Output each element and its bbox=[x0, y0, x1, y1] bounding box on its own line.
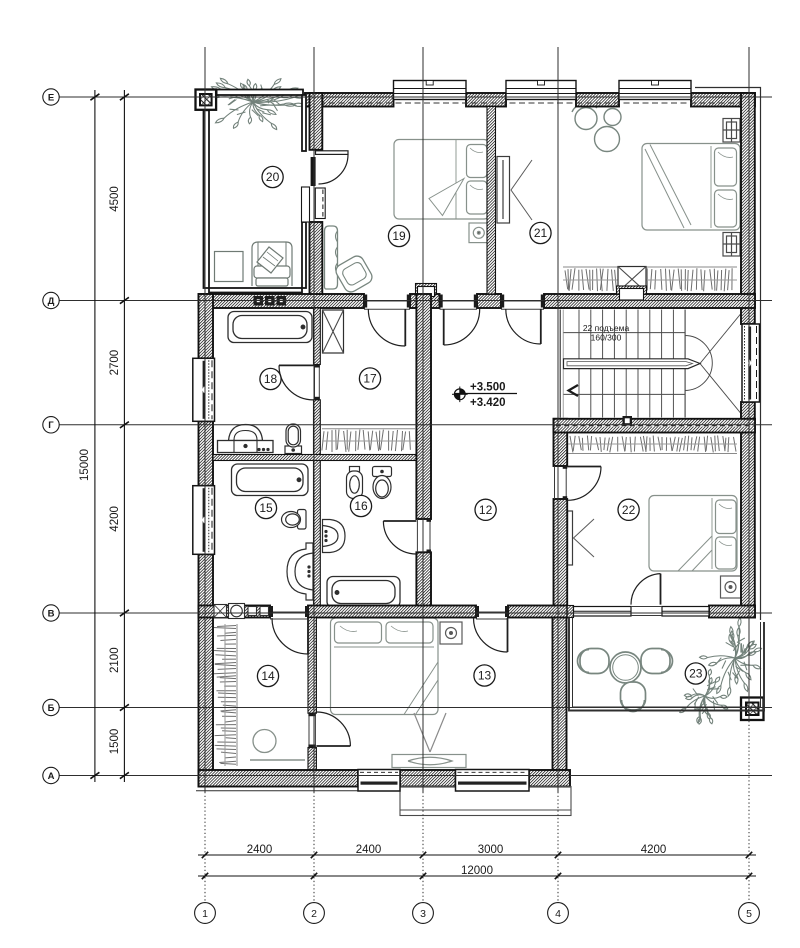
svg-text:4200: 4200 bbox=[641, 844, 667, 856]
svg-text:14: 14 bbox=[261, 669, 275, 683]
svg-text:13: 13 bbox=[478, 669, 492, 683]
svg-text:Д: Д bbox=[48, 296, 55, 307]
svg-text:4200: 4200 bbox=[109, 506, 121, 532]
svg-text:2700: 2700 bbox=[109, 350, 121, 376]
svg-text:4500: 4500 bbox=[109, 186, 121, 212]
svg-text:3: 3 bbox=[420, 908, 426, 920]
svg-text:19: 19 bbox=[392, 229, 406, 243]
svg-text:1: 1 bbox=[202, 908, 208, 920]
svg-text:3000: 3000 bbox=[478, 844, 504, 856]
svg-text:12000: 12000 bbox=[461, 865, 493, 877]
svg-text:2400: 2400 bbox=[247, 844, 273, 856]
svg-text:+3.500: +3.500 bbox=[470, 382, 506, 394]
svg-text:22: 22 bbox=[622, 503, 636, 517]
svg-text:4: 4 bbox=[555, 908, 561, 920]
svg-text:160/300: 160/300 bbox=[591, 333, 622, 343]
svg-text:2400: 2400 bbox=[356, 844, 382, 856]
svg-text:Е: Е bbox=[48, 92, 54, 103]
svg-text:Б: Б bbox=[48, 703, 55, 714]
svg-text:2100: 2100 bbox=[109, 647, 121, 673]
svg-text:1500: 1500 bbox=[109, 729, 121, 755]
svg-text:А: А bbox=[48, 771, 55, 782]
svg-text:В: В bbox=[48, 608, 55, 619]
svg-text:15000: 15000 bbox=[79, 449, 91, 481]
svg-text:12: 12 bbox=[479, 503, 493, 517]
svg-text:21: 21 bbox=[534, 226, 548, 240]
svg-text:15: 15 bbox=[259, 501, 273, 515]
svg-text:16: 16 bbox=[354, 499, 368, 513]
svg-text:5: 5 bbox=[746, 908, 752, 920]
svg-text:23: 23 bbox=[689, 667, 703, 681]
svg-text:Г: Г bbox=[48, 420, 54, 431]
svg-text:18: 18 bbox=[264, 372, 278, 386]
svg-text:+3.420: +3.420 bbox=[470, 397, 506, 409]
svg-text:22 подъема: 22 подъема bbox=[583, 323, 630, 333]
svg-text:20: 20 bbox=[266, 170, 280, 184]
svg-text:17: 17 bbox=[363, 372, 377, 386]
svg-text:2: 2 bbox=[311, 908, 317, 920]
